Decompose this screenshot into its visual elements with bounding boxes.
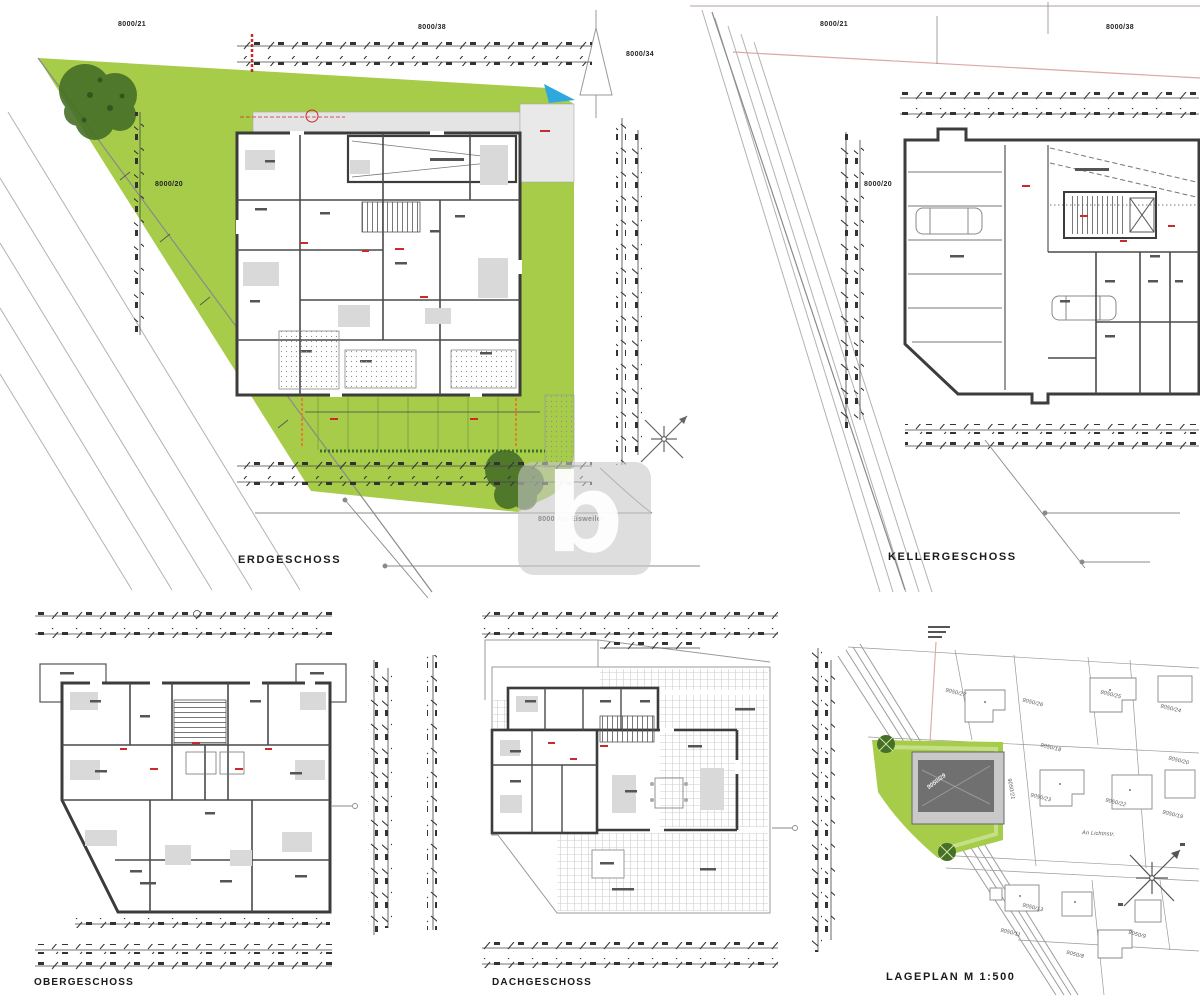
watermark: b: [518, 462, 651, 575]
plan-title-lageplan: LAGEPLAN M 1:500: [886, 971, 1016, 983]
compass-icon: [1118, 843, 1185, 906]
staircase: [362, 202, 420, 232]
watermark-letter: b: [546, 461, 623, 569]
boundary-line: [733, 52, 1200, 78]
parcel-label: 8000/34: [626, 51, 654, 58]
compass-icon: [641, 416, 687, 462]
parcel-label: 8000/20: [864, 181, 892, 188]
staircase: [174, 700, 226, 744]
leader-lines: [772, 826, 798, 831]
obergeschoss-plan: [35, 610, 437, 970]
road-lines: [702, 10, 932, 592]
subject-building: [912, 752, 1004, 824]
staircase: [600, 716, 654, 742]
parcel-label: 8000/21: [118, 21, 146, 28]
plan-title-obergeschoss: OBERGESCHOSS: [34, 977, 134, 988]
building-outline: [905, 129, 1199, 403]
plan-title-dachgeschoss: DACHGESCHOSS: [492, 977, 592, 988]
leader-lines: [985, 440, 1180, 568]
architectural-drawing-sheet: 8000/21 8000/38 8000/34 8000/20 8000 Am …: [0, 0, 1200, 1000]
leader-lines: [332, 804, 358, 809]
boundary-line: [930, 642, 936, 742]
dachgeschoss-plan: [482, 610, 798, 968]
plan-title-kellergeschoss: KELLERGESCHOSS: [888, 551, 1017, 563]
parcel-label: 8000/38: [418, 24, 446, 31]
terrace-hatch: [557, 833, 768, 911]
site-note-scribble: [928, 626, 950, 638]
lageplan: [812, 626, 1199, 995]
parcel-label: 8000/38: [1106, 24, 1134, 31]
parcel-label: 8000/21: [820, 21, 848, 28]
water-mark: [544, 84, 575, 103]
parcel-label: 8000/20: [155, 181, 183, 188]
kellergeschoss-plan: [702, 2, 1200, 592]
dimension-chains: [812, 648, 835, 952]
plan-title-erdgeschoss: ERDGESCHOSS: [238, 554, 341, 566]
